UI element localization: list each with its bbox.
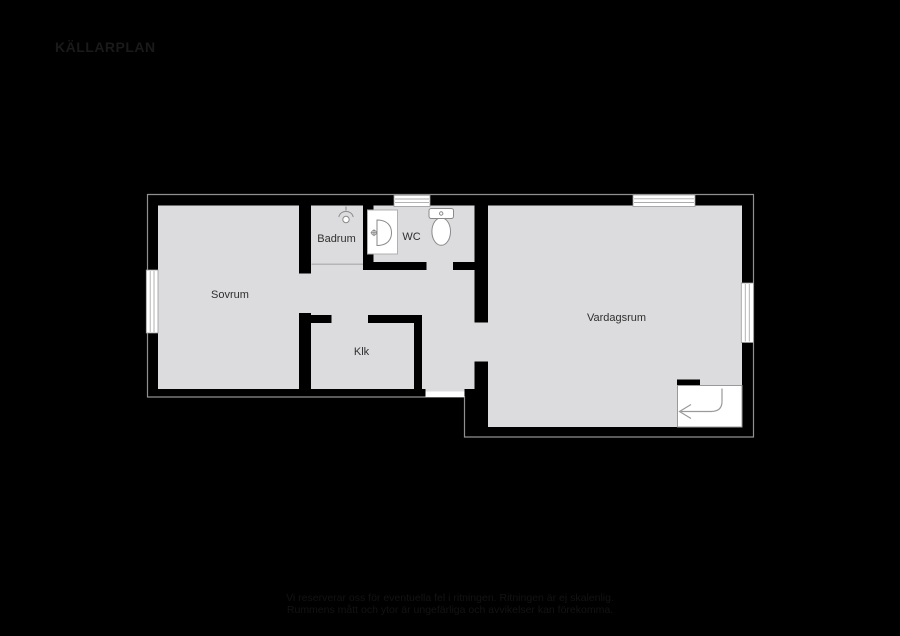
- sink-icon: [368, 210, 398, 254]
- wall-segment: [475, 205, 489, 323]
- stairs-area: [678, 386, 743, 428]
- window-frame: [394, 195, 430, 206]
- wall-segment: [311, 315, 332, 323]
- room-label-sovrum: Sovrum: [211, 289, 249, 301]
- room-label-wc: WC: [402, 231, 420, 243]
- floor-vardagsrum-doorway: [474, 323, 488, 362]
- wall-segment: [299, 313, 311, 389]
- floorplan-drawing: Sovrum Badrum WC Klk Vardagsrum: [0, 0, 900, 636]
- room-label-badrum: Badrum: [317, 233, 356, 245]
- window-frame: [146, 270, 158, 333]
- window-frame: [633, 195, 695, 207]
- wall-segment: [414, 321, 422, 389]
- window-frame: [741, 283, 753, 343]
- disclaimer-line-1: Vi reserverar oss för eventuella fel i r…: [0, 592, 900, 604]
- wall-segment: [475, 362, 489, 398]
- toilet-bowl: [432, 218, 451, 246]
- disclaimer-line-2: Rummens mått och ytor är ungefärliga och…: [0, 604, 900, 616]
- window-top-wc: [394, 195, 430, 206]
- toilet-flush-button: [440, 212, 443, 215]
- shower-head: [343, 216, 349, 222]
- room-label-klk: Klk: [354, 346, 370, 358]
- disclaimer: Vi reserverar oss för eventuella fel i r…: [0, 592, 900, 617]
- wall-segment: [368, 315, 422, 323]
- entrance-door-opening: [426, 392, 465, 398]
- window-top-vardagsrum: [633, 195, 695, 207]
- room-label-vardagsrum: Vardagsrum: [587, 312, 646, 324]
- window-right: [741, 283, 753, 343]
- wall-segment: [299, 205, 311, 274]
- wall-segment: [373, 262, 427, 270]
- floor-entrance-passage: [426, 389, 465, 392]
- floorplan-canvas: KÄLLARPLAN: [0, 0, 900, 636]
- window-left: [146, 270, 158, 333]
